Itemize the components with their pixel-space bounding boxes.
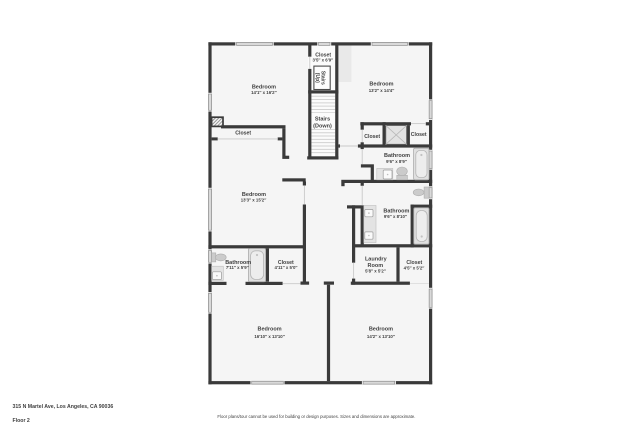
- svg-text:Bedroom: Bedroom: [258, 327, 282, 333]
- svg-text:Closet: Closet: [235, 130, 251, 136]
- svg-text:14′2″ x 13′10″: 14′2″ x 13′10″: [367, 334, 395, 339]
- svg-text:Closet: Closet: [411, 132, 427, 138]
- svg-text:14′1″ x 16′2″: 14′1″ x 16′2″: [251, 90, 277, 95]
- svg-text:315 N Martel Ave, Los Angeles,: 315 N Martel Ave, Los Angeles, CA 90036: [13, 404, 114, 410]
- svg-text:5′8″ x 5′2″: 5′8″ x 5′2″: [365, 268, 386, 273]
- svg-text:3′5″ x 6′9″: 3′5″ x 6′9″: [313, 58, 334, 63]
- svg-text:13′2″ x 14′4″: 13′2″ x 14′4″: [369, 88, 395, 93]
- svg-text:13′3″ x 15′2″: 13′3″ x 15′2″: [241, 197, 267, 202]
- svg-text:Bedroom: Bedroom: [369, 327, 393, 333]
- svg-text:Stairs: Stairs: [315, 117, 330, 123]
- svg-text:Floor plans/tour cannot be use: Floor plans/tour cannot be used for buil…: [217, 414, 415, 419]
- svg-text:9′6″ x 8′9″: 9′6″ x 8′9″: [386, 159, 407, 164]
- svg-text:Floor 2: Floor 2: [13, 418, 30, 424]
- svg-text:16′10″ x 13′10″: 16′10″ x 13′10″: [254, 334, 284, 339]
- svg-text:Laundry: Laundry: [365, 256, 388, 262]
- svg-text:Bedroom: Bedroom: [369, 82, 393, 88]
- svg-text:Closet: Closet: [364, 134, 380, 140]
- svg-text:9′6″ x 8′10″: 9′6″ x 8′10″: [384, 214, 407, 219]
- svg-text:(Down): (Down): [313, 123, 332, 129]
- svg-text:4′5″ x 5′2″: 4′5″ x 5′2″: [404, 265, 425, 270]
- svg-text:7′11″ x 5′9″: 7′11″ x 5′9″: [226, 265, 249, 270]
- svg-text:4′11″ x 5′0″: 4′11″ x 5′0″: [275, 265, 298, 270]
